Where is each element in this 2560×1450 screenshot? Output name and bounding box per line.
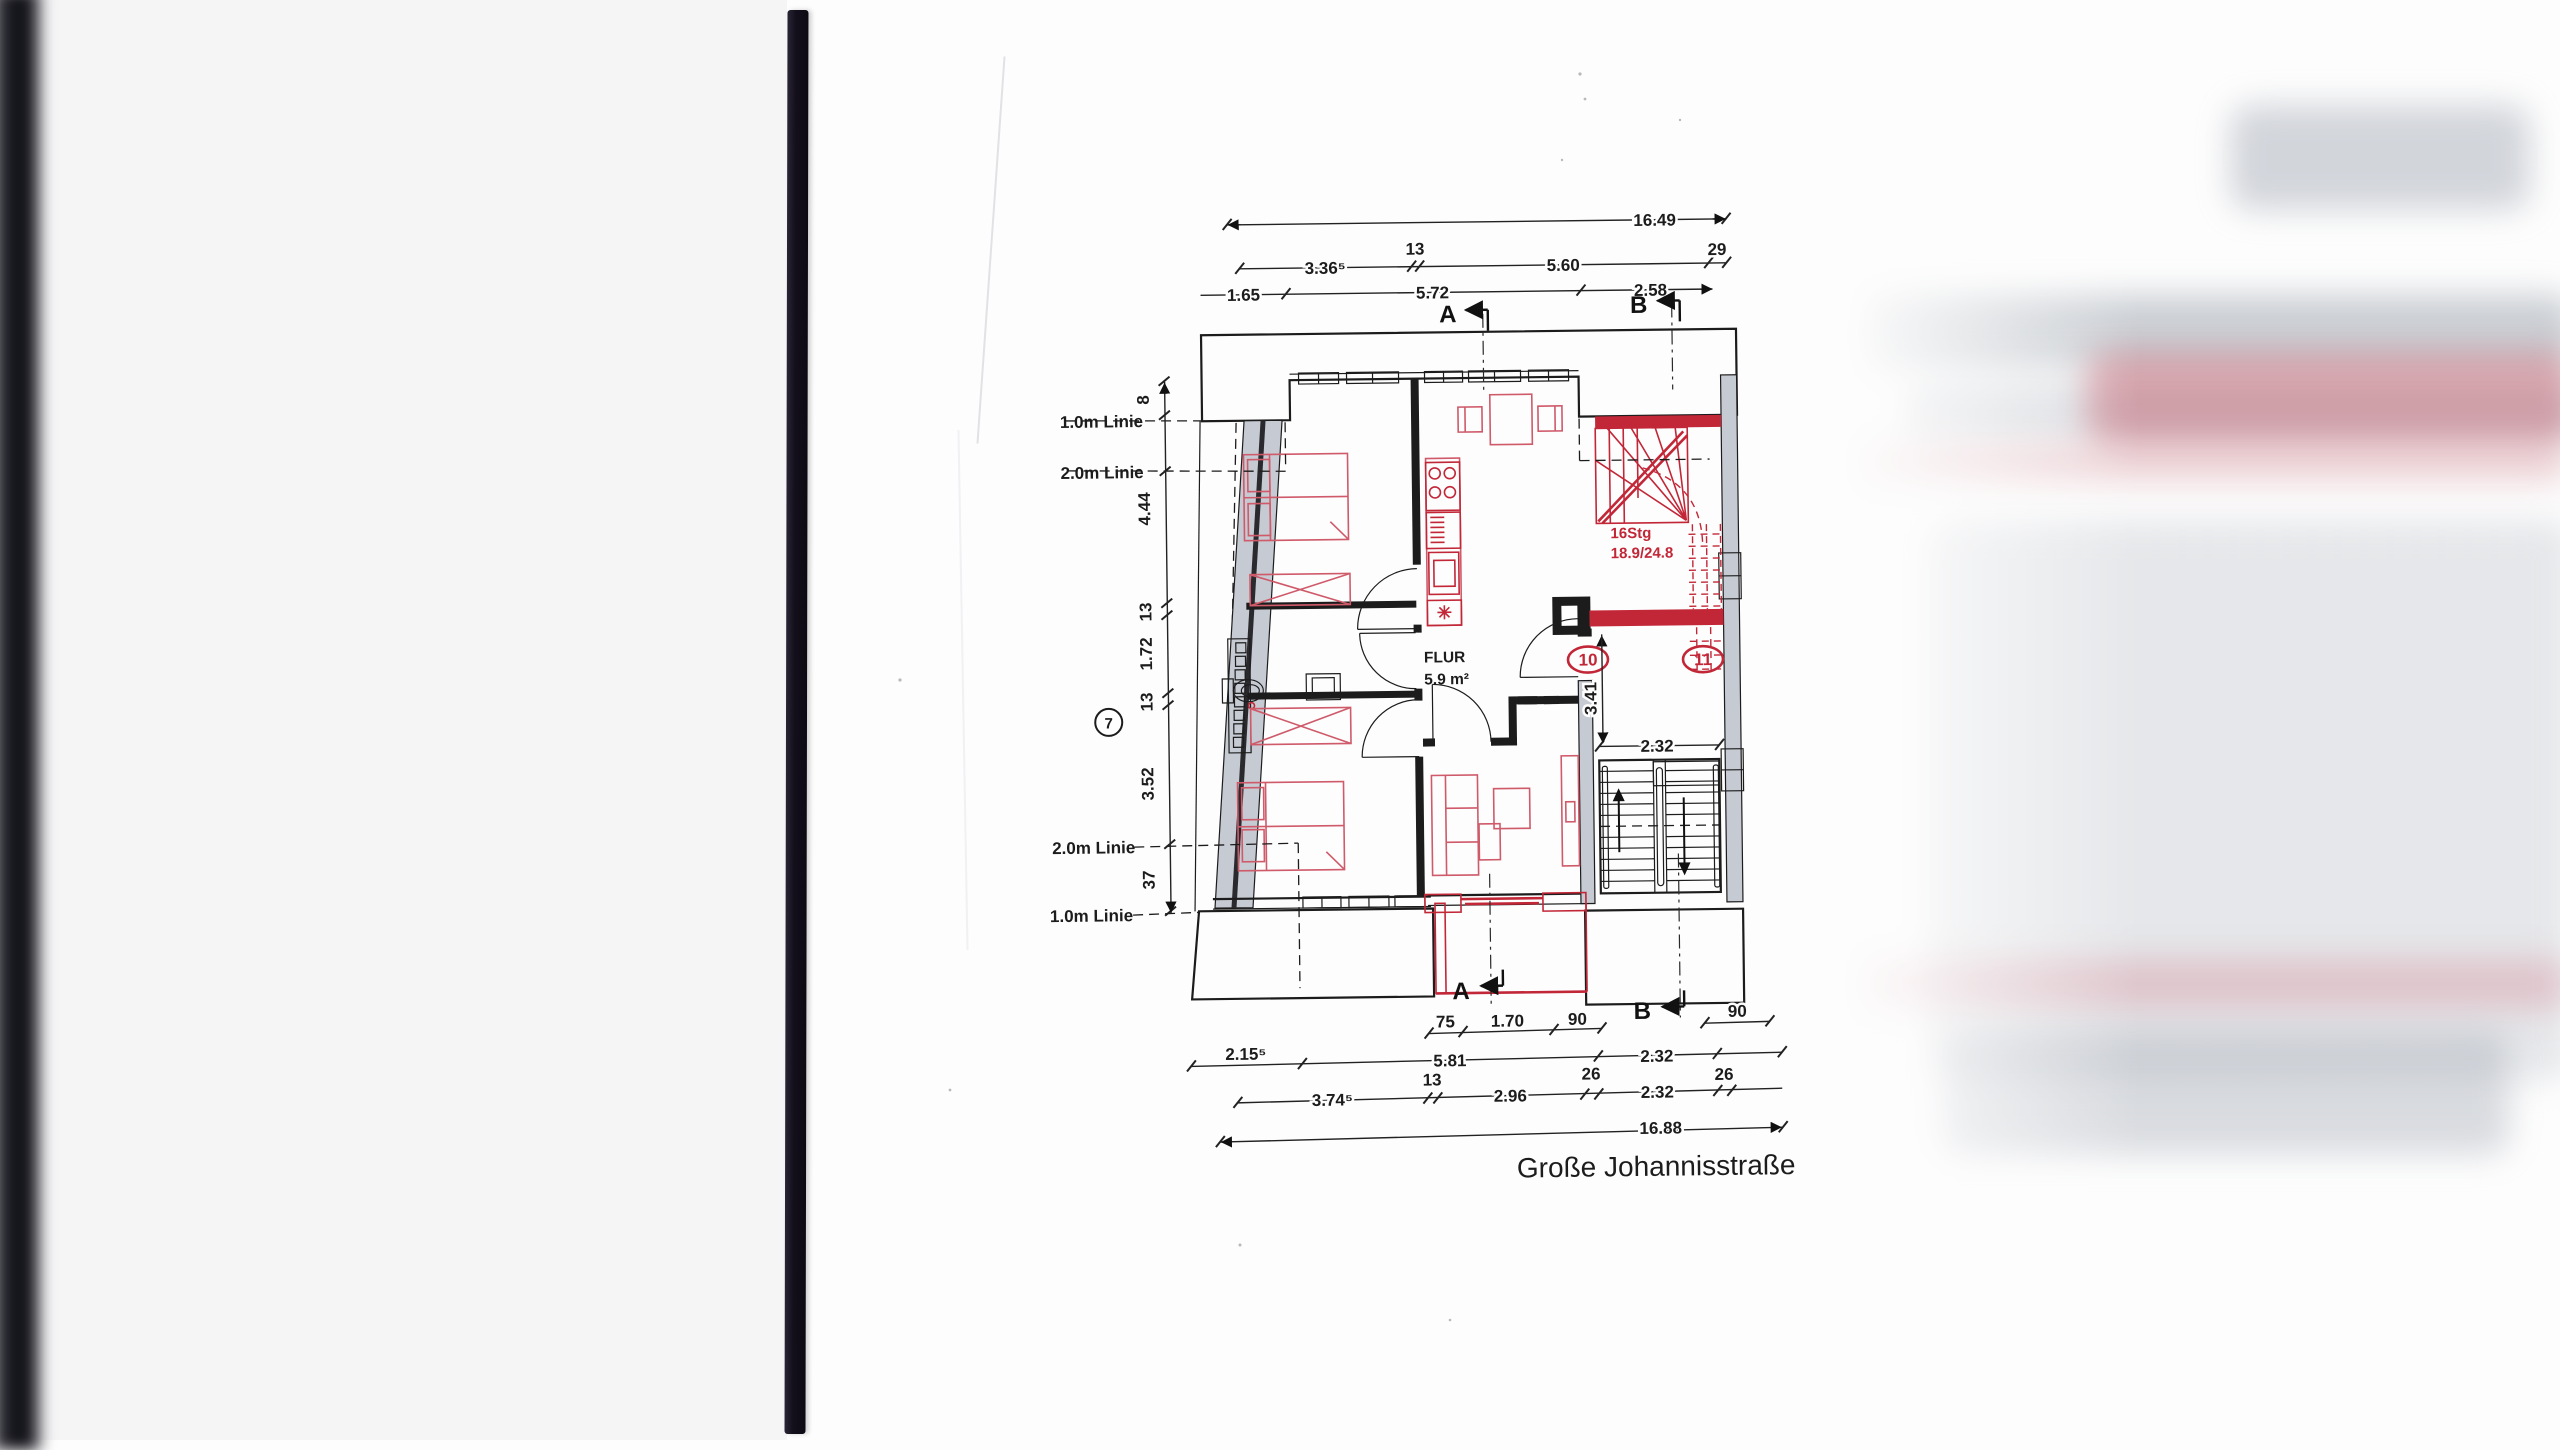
section-marker-a-top: A xyxy=(1439,301,1488,332)
boiler-symbol xyxy=(1437,605,1451,619)
red-fire-wall xyxy=(1589,609,1723,627)
chimney-shaft xyxy=(1552,597,1590,635)
doors xyxy=(1357,567,1579,758)
svg-text:3.52: 3.52 xyxy=(1138,767,1157,800)
svg-text:A: A xyxy=(1452,978,1470,1005)
kitchen-counter xyxy=(1426,458,1462,625)
svg-text:37: 37 xyxy=(1140,870,1159,889)
unit-badge-11: 11 xyxy=(1683,646,1723,672)
section-marker-b-bottom: B xyxy=(1633,990,1684,1025)
guide-label-2m-top: 2.0m Linie xyxy=(1060,463,1143,483)
section-marker-a-bottom: A xyxy=(1452,970,1503,1006)
svg-text:26: 26 xyxy=(1581,1064,1600,1083)
interior-walls xyxy=(1244,377,1595,908)
svg-text:90: 90 xyxy=(1728,1002,1747,1021)
sliding-door xyxy=(1461,898,1543,904)
svg-text:2.32: 2.32 xyxy=(1640,1047,1673,1066)
position-badge-7: 7 xyxy=(1095,709,1122,736)
guide-label-1m-bottom: 1.0m Linie xyxy=(1050,906,1133,926)
svg-text:13: 13 xyxy=(1137,692,1156,711)
svg-text:1.65: 1.65 xyxy=(1227,286,1260,305)
svg-text:90: 90 xyxy=(1568,1010,1587,1029)
svg-text:26: 26 xyxy=(1715,1065,1734,1084)
street-label: Große Johannisstraße xyxy=(1517,1149,1796,1183)
svg-text:16.88: 16.88 xyxy=(1639,1118,1682,1138)
svg-text:B: B xyxy=(1633,998,1651,1025)
svg-text:1.72: 1.72 xyxy=(1137,637,1156,670)
wardrobe-bathroom xyxy=(1251,707,1351,744)
room-label-flur: FLUR xyxy=(1424,649,1466,667)
svg-text:B: B xyxy=(1630,292,1648,319)
coffee-tables xyxy=(1479,788,1531,860)
room-area-flur: 5.9 m² xyxy=(1424,671,1469,689)
dining-table-set xyxy=(1458,394,1563,445)
sofa xyxy=(1431,775,1478,876)
tall-cabinet xyxy=(1561,756,1579,866)
dimension-top: 16.49 3.36⁵ 13 5.60 29 1.65 5.72 2.58 xyxy=(1200,210,1732,305)
scanned-document-page: 16Stg 18.9/24.8 xyxy=(0,0,2560,1440)
balcony xyxy=(1425,893,1587,994)
svg-text:3.74⁵: 3.74⁵ xyxy=(1312,1090,1353,1110)
svg-text:10: 10 xyxy=(1578,650,1597,669)
svg-text:2.15⁵: 2.15⁵ xyxy=(1225,1045,1266,1065)
svg-text:5.60: 5.60 xyxy=(1547,256,1580,275)
svg-text:29: 29 xyxy=(1707,240,1726,259)
svg-text:5.72: 5.72 xyxy=(1416,283,1449,302)
guide-label-1m-top: 1.0m Linie xyxy=(1060,412,1143,432)
svg-text:11: 11 xyxy=(1694,650,1712,669)
svg-text:16.49: 16.49 xyxy=(1633,210,1676,230)
existing-stair xyxy=(1599,759,1721,893)
stair-up-arrow xyxy=(1613,788,1626,852)
svg-text:8: 8 xyxy=(1134,395,1153,405)
south-wall xyxy=(1213,894,1588,910)
window-sill xyxy=(1543,893,1586,912)
floor-plan-drawing: 16Stg 18.9/24.8 xyxy=(0,0,2560,1440)
svg-text:4.44: 4.44 xyxy=(1135,492,1154,526)
svg-text:3.36⁵: 3.36⁵ xyxy=(1305,258,1346,278)
stair-ratio-note: 18.9/24.8 xyxy=(1611,545,1674,563)
svg-text:13: 13 xyxy=(1423,1070,1442,1089)
guide-label-2m-bottom: 2.0m Linie xyxy=(1052,838,1135,858)
svg-text:3.41: 3.41 xyxy=(1581,682,1600,715)
dimension-left: 8 4.44 13 1.72 13 3.52 37 xyxy=(1134,377,1177,916)
svg-text:2.32: 2.32 xyxy=(1640,737,1673,756)
svg-text:75: 75 xyxy=(1436,1012,1455,1031)
svg-text:1.70: 1.70 xyxy=(1491,1011,1524,1030)
stair-count-note: 16Stg xyxy=(1610,525,1651,542)
dimension-bottom: 75 1.70 90 90 2.15⁵ 5.81 2.32 3.74⁵ 13 2… xyxy=(1186,1001,1788,1147)
new-stair-red: 16Stg 18.9/24.8 xyxy=(1595,415,1724,673)
svg-text:2.32: 2.32 xyxy=(1641,1083,1674,1102)
svg-text:A: A xyxy=(1439,301,1457,328)
svg-text:13: 13 xyxy=(1405,240,1424,259)
svg-text:7: 7 xyxy=(1104,715,1113,732)
svg-text:13: 13 xyxy=(1136,602,1155,621)
svg-text:2.96: 2.96 xyxy=(1494,1086,1527,1105)
svg-text:5.81: 5.81 xyxy=(1433,1051,1466,1070)
